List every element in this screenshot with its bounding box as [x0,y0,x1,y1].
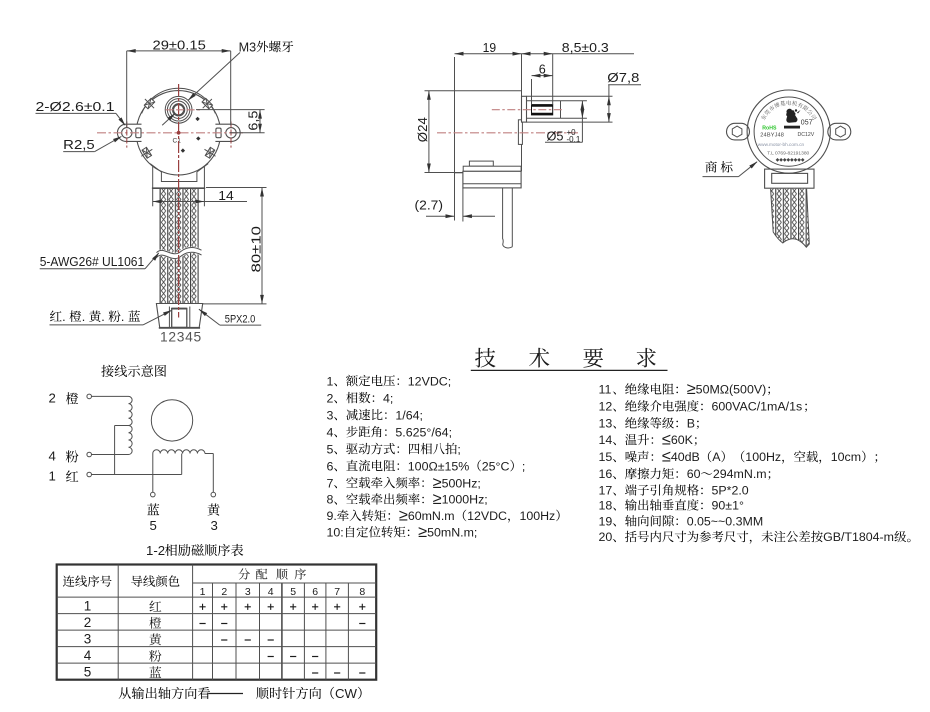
svg-text:GB/T1804-m: GB/T1804-m [823,530,894,544]
svg-text:5: 5 [327,442,334,456]
svg-text:1: 1 [200,586,206,598]
svg-text:1-2: 1-2 [146,543,165,558]
svg-text:.: . [121,310,125,324]
svg-text:100Hz: 100Hz [745,450,781,464]
svg-text:12: 12 [599,400,613,414]
svg-text:1000Hz;: 1000Hz; [442,493,488,507]
svg-text:0.05~~0.3MM: 0.05~~0.3MM [687,514,763,528]
svg-text:-0.1: -0.1 [567,135,581,144]
svg-text:5P*2.0: 5P*2.0 [711,484,748,498]
svg-text:500Hz;: 500Hz; [442,476,481,490]
svg-text:40dB: 40dB [671,450,700,464]
svg-text:90±1°: 90±1° [711,499,743,513]
svg-text:80±10: 80±10 [249,226,263,273]
svg-text:Ø24: Ø24 [416,117,430,142]
svg-text:7: 7 [327,476,334,490]
svg-text:60: 60 [687,467,701,481]
svg-text:Ø7,8: Ø7,8 [607,71,639,85]
svg-text:2: 2 [49,391,56,406]
svg-text:14: 14 [218,189,234,203]
svg-text:7: 7 [334,586,340,598]
svg-text:A: A [712,450,721,464]
svg-text:600VAC/1mA/1s: 600VAC/1mA/1s [711,400,802,414]
svg-text:24BYJ48: 24BYJ48 [760,133,784,139]
svg-text:2-Ø2.6±0.1: 2-Ø2.6±0.1 [36,100,115,114]
svg-text:60mN.m: 60mN.m [408,509,455,523]
svg-text:15: 15 [599,450,613,464]
svg-text:≥: ≥ [418,523,427,541]
svg-text:10cm: 10cm [831,450,861,464]
svg-text:17: 17 [599,484,613,498]
svg-text:.: . [62,310,66,324]
svg-text:5.625°/64;: 5.625°/64; [395,425,452,439]
svg-text:10:: 10: [327,526,344,540]
svg-text:T.L 0769-82191380: T.L 0769-82191380 [767,150,809,156]
svg-text:18: 18 [599,499,613,513]
svg-text:M3: M3 [239,40,257,54]
svg-text:11: 11 [599,383,612,397]
svg-text:2: 2 [221,586,227,598]
svg-text:25°C: 25°C [482,459,510,473]
svg-text:3: 3 [327,408,334,422]
svg-text:50mN.m;: 50mN.m; [427,526,477,540]
svg-text:8,5±0.3: 8,5±0.3 [562,41,609,55]
svg-text:6: 6 [539,63,546,77]
svg-text:60K: 60K [671,433,694,447]
svg-text:19: 19 [599,514,613,528]
svg-text:19: 19 [483,41,497,55]
svg-text:CW: CW [335,686,358,701]
svg-text:1: 1 [49,469,56,484]
svg-text:057: 057 [801,119,813,126]
svg-text:20: 20 [599,530,613,544]
svg-text:2: 2 [327,391,334,405]
svg-text:≥: ≥ [433,474,442,492]
svg-text:≥: ≥ [399,507,408,525]
svg-text:B: B [687,417,695,431]
svg-text:8: 8 [359,586,365,598]
svg-text:(2.7): (2.7) [415,198,444,212]
svg-text:6,5: 6,5 [247,111,261,131]
svg-text:3: 3 [245,586,251,598]
svg-text:12VDC;: 12VDC; [408,374,451,388]
svg-text:50MΩ(500V): 50MΩ(500V) [696,383,767,397]
svg-text:≤: ≤ [662,431,671,449]
svg-text:;: ; [522,459,525,473]
svg-text:6: 6 [312,586,318,598]
svg-text:DC12V: DC12V [798,132,815,138]
svg-text:≤: ≤ [662,448,671,466]
svg-text:294mN.m: 294mN.m [713,467,767,481]
svg-text:16: 16 [599,467,613,481]
svg-text:;: ; [457,442,460,456]
svg-text:6: 6 [327,459,334,473]
svg-text:8: 8 [327,493,334,507]
svg-text:4;: 4; [383,391,393,405]
svg-text:R2,5: R2,5 [63,138,94,152]
svg-text:3: 3 [84,631,92,646]
svg-text:www.motor-bh.com.cn: www.motor-bh.com.cn [758,142,805,147]
svg-text:Ø5: Ø5 [547,130,564,144]
svg-text:5: 5 [150,518,157,533]
svg-text:2: 2 [84,615,92,630]
svg-text:1: 1 [84,598,92,613]
svg-text:29±0.15: 29±0.15 [153,38,206,52]
svg-text:4: 4 [268,586,274,598]
svg-text:.: . [101,310,105,324]
svg-text:RoHS: RoHS [762,126,777,132]
svg-text:12345: 12345 [160,330,202,345]
svg-text:1/64;: 1/64; [395,408,423,422]
svg-text:4: 4 [327,425,334,439]
svg-text:13: 13 [599,417,613,431]
svg-text:5PX2.0: 5PX2.0 [225,314,256,326]
svg-text:≥: ≥ [433,490,442,508]
svg-text:5: 5 [290,586,296,598]
svg-text:4: 4 [84,648,92,663]
svg-text:100Ω±15%: 100Ω±15% [408,459,470,473]
svg-text:5-AWG26# UL1061: 5-AWG26# UL1061 [40,255,145,269]
svg-text:12VDC: 12VDC [467,509,507,523]
svg-text:14: 14 [599,433,613,447]
svg-text:9.: 9. [327,509,337,523]
svg-text:100Hz: 100Hz [519,509,555,523]
svg-text:4: 4 [49,449,56,464]
svg-text:3: 3 [211,518,218,533]
svg-text:5: 5 [84,664,92,679]
svg-text:≥: ≥ [687,380,696,398]
svg-text:.: . [82,310,86,324]
svg-text:1: 1 [327,374,334,388]
svg-text:C1: C1 [173,138,182,145]
